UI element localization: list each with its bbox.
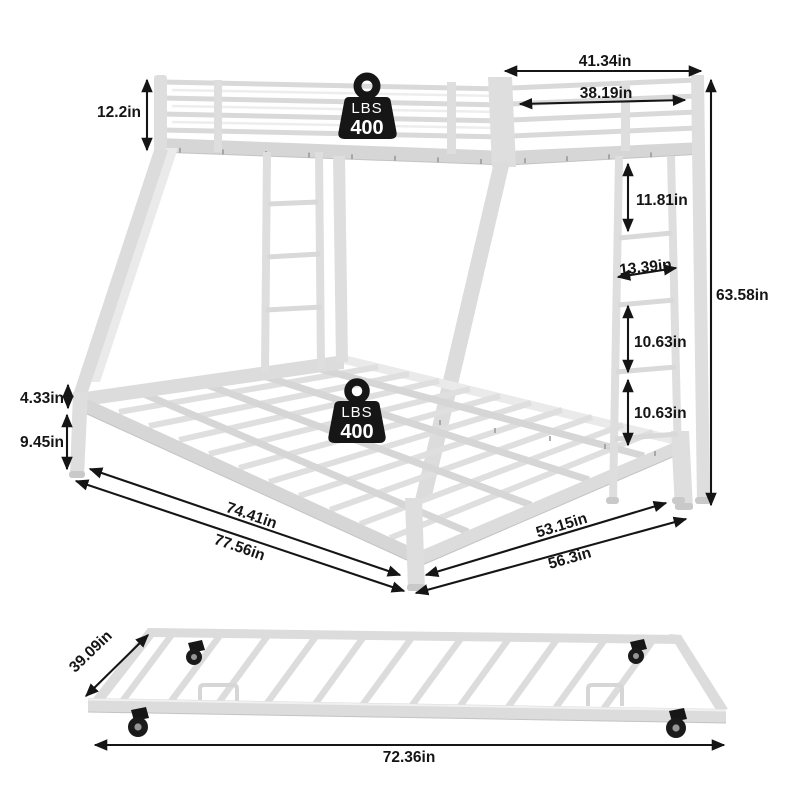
kettlebell-icon [348,382,366,400]
dim-label-ladder-width: 13.39in [619,256,673,278]
rear-right-post [691,75,710,502]
dim-label-rung-gap-lower: 10.63in [634,405,687,422]
dim-bunk-gap-height: 11.81in [628,164,688,231]
badge-bottom-unit: LBS [341,404,372,421]
dim-trundle-length: 72.36in [95,745,724,766]
dim-label-bottom-inner-length: 74.41in [224,499,279,532]
bunk-bed-drawing [69,75,711,591]
dim-label-top-inner-width: 38.19in [580,85,633,102]
badge-bottom-value: 400 [340,421,373,443]
dim-label-bottom-outer-width: 56.3in [546,544,593,572]
dim-label-overall-height: 63.58in [716,287,769,304]
trundle [88,628,728,738]
bunk-bed-dimension-diagram: LBS 400 LBS 400 12.2in 41.34in 38.19in 6… [0,0,800,800]
dim-underbed-clearance: 9.45in [20,415,67,469]
dim-side-rail-height: 4.33in [20,385,68,408]
dim-label-side-rail-height: 4.33in [20,390,64,407]
diagram-canvas: LBS 400 LBS 400 12.2in 41.34in 38.19in 6… [0,0,800,800]
trundle-right-rail [669,634,728,710]
badge-top-unit: LBS [351,100,382,117]
dim-ladder-width: 13.39in [618,256,676,278]
dim-label-trundle-width: 39.09in [66,627,116,676]
badge-top-value: 400 [350,117,383,139]
bottom-bed [69,355,693,591]
mid-front-post [333,156,348,362]
dim-guardrail-height: 12.2in [97,80,147,150]
dim-label-rung-gap-upper: 10.63in [634,334,687,351]
bottom-bed-left-leg [70,392,88,476]
bottom-bed-front-leg [405,498,425,590]
bottom-bed-foot-rail [420,438,684,566]
dim-label-bottom-inner-width: 53.15in [534,510,589,542]
top-bunk-front-corner-post [488,77,516,167]
dim-label-underbed-clearance: 9.45in [20,434,64,451]
dim-overall-height: 63.58in [711,80,769,505]
dim-label-top-outer-width: 41.34in [579,53,632,70]
dim-label-guardrail-height: 12.2in [97,104,141,121]
dim-label-trundle-length: 72.36in [383,749,436,766]
left-angled-leg-front [74,150,168,392]
middle-ladder [261,152,325,373]
dim-top-outer-width: 41.34in [505,53,701,71]
trundle-rear-rail [150,628,678,644]
dim-label-bunk-gap-height: 11.81in [636,192,688,209]
